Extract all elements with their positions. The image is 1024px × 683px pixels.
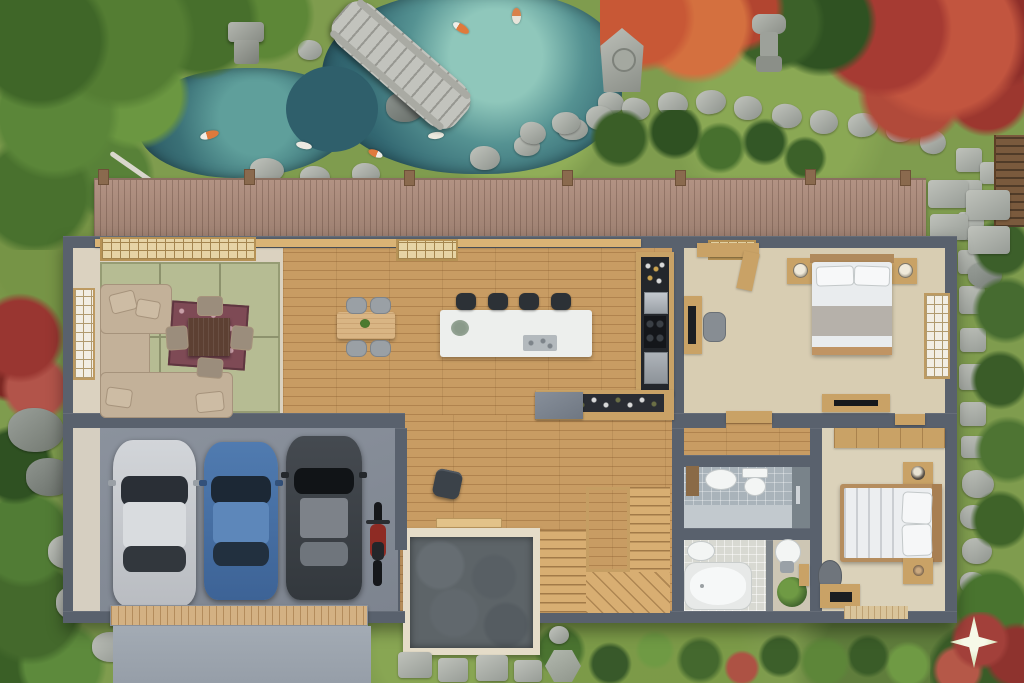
- bed-foot-bench: [812, 347, 892, 355]
- toilet-bowl: [744, 477, 766, 496]
- stepping-stone: [438, 658, 468, 682]
- bath-cabinet: [686, 466, 699, 496]
- rock: [298, 40, 322, 60]
- wall-bath-left: [672, 428, 684, 611]
- wall-hall-south-rooms: [772, 413, 895, 428]
- round-stone: [549, 626, 569, 644]
- genkan-slate-floor: [410, 537, 533, 648]
- powder-basin-pedestal: [780, 561, 794, 573]
- deck-post: [675, 170, 686, 186]
- bar-stool: [551, 293, 571, 310]
- stepping-stone: [956, 148, 982, 172]
- stepping-stone: [771, 102, 803, 129]
- rock: [968, 262, 1002, 288]
- rock: [962, 538, 992, 564]
- floor-cushion: [230, 325, 254, 351]
- lattice-panel: [396, 239, 458, 261]
- floor-cushion: [197, 296, 223, 316]
- stone-slab: [968, 226, 1010, 254]
- desk-monitor: [688, 306, 696, 344]
- stone-slab: [966, 190, 1010, 220]
- island-sink: [451, 320, 469, 336]
- kitchen-gray-cabinet: [535, 392, 583, 419]
- bed-duvet-folds: [844, 488, 902, 558]
- console-tv: [834, 400, 878, 406]
- car-rear-glass: [213, 542, 269, 566]
- deck-post: [404, 170, 415, 186]
- pillow: [816, 265, 855, 286]
- wall-bath-top: [684, 455, 810, 467]
- rock: [470, 146, 500, 170]
- porch-step: [436, 518, 502, 528]
- wall-left: [63, 236, 73, 623]
- car-mirror: [359, 472, 367, 478]
- bath1-lower-band: [684, 505, 792, 528]
- stepping-stone: [847, 112, 879, 139]
- motorcycle-seat: [372, 542, 384, 560]
- stepping-stone: [918, 128, 947, 155]
- powder-wall-frame: [799, 564, 809, 586]
- stone-lantern-pillar-shaft: [760, 32, 778, 58]
- car-windshield: [294, 468, 354, 494]
- bar-stool: [519, 293, 539, 310]
- garage-door: [110, 605, 368, 626]
- pillow: [901, 523, 932, 556]
- floor-plan-render: [0, 0, 1024, 683]
- deck-post: [244, 169, 255, 185]
- bathroom-sink: [705, 469, 737, 490]
- sofa-pillow: [195, 391, 225, 414]
- car-silver: [113, 440, 196, 607]
- shoji-window-bedroom1: [924, 293, 950, 379]
- kitchen-oven: [644, 352, 668, 384]
- stepping-stone: [188, 20, 218, 44]
- floor-cushion: [165, 325, 189, 350]
- stone-lantern-pillar-base: [756, 56, 782, 72]
- wall-garage-entry: [395, 428, 407, 550]
- shower-fixture: [796, 486, 800, 504]
- lattice-panel: [100, 237, 256, 261]
- stone-lantern-square: [228, 22, 264, 42]
- sofa-pillow: [135, 298, 162, 320]
- desk-laptop: [830, 592, 852, 602]
- door-leaf-bedroom2: [895, 414, 925, 425]
- stepping-stone: [262, 16, 290, 38]
- low-table: [188, 318, 230, 356]
- stone-lantern-square-base: [234, 40, 259, 64]
- rock: [142, 58, 168, 78]
- car-rear-glass: [300, 542, 348, 566]
- stepping-stone: [586, 106, 614, 130]
- dining-chair: [346, 340, 367, 357]
- rock: [8, 408, 64, 452]
- deck-post: [98, 169, 109, 185]
- nightstand-cup: [913, 565, 924, 576]
- stepping-stone: [398, 652, 432, 678]
- staircase-winder: [586, 572, 670, 613]
- stepping-stone: [150, 2, 184, 28]
- car-mirror: [281, 472, 289, 478]
- stepping-stone: [620, 96, 651, 123]
- dining-plant: [360, 319, 370, 328]
- stepping-stone: [959, 286, 985, 314]
- car-windshield: [211, 476, 271, 504]
- kitchen-cooktop: [644, 316, 666, 348]
- stepping-stone: [886, 118, 914, 142]
- motorcycle: [364, 502, 394, 586]
- car-sunroof: [300, 498, 348, 538]
- bedside-lamp: [898, 263, 913, 278]
- car-rear-glass: [123, 546, 186, 572]
- kitchen-shelf-bottles: [643, 260, 667, 288]
- car-roof: [213, 502, 269, 544]
- bed-blanket-band: [812, 306, 892, 336]
- stepping-stone: [222, 2, 252, 24]
- driveway: [113, 626, 371, 683]
- hexagon-stone: [545, 650, 581, 682]
- wall-powder-divider: [766, 540, 773, 611]
- stepping-stone: [658, 92, 688, 116]
- bathtub-drain: [700, 584, 704, 588]
- desk-chair: [703, 312, 726, 342]
- deck-post: [805, 169, 816, 185]
- stepping-stone: [694, 88, 727, 116]
- bedside-lamp: [793, 263, 808, 278]
- deck-post: [900, 170, 911, 186]
- garage-side-strip: [73, 428, 102, 611]
- stepping-stone: [734, 96, 762, 120]
- rock: [962, 470, 994, 498]
- stone-lantern-pagoda-ring: [612, 48, 636, 72]
- dining-chair: [370, 297, 391, 314]
- stepping-stone: [960, 328, 986, 352]
- door-leaf-bedroom1: [726, 411, 772, 423]
- kitchen-steel-panel: [644, 292, 668, 314]
- dining-chair: [370, 340, 391, 357]
- stepping-stone: [810, 110, 838, 134]
- wall-hall-south-rooms: [672, 413, 726, 428]
- rock: [960, 572, 986, 594]
- stone-slab: [928, 180, 968, 208]
- staircase-right-flight: [630, 487, 670, 572]
- deck-post: [562, 170, 573, 186]
- koi-fish: [512, 8, 521, 24]
- bathroom2-sink: [687, 541, 715, 561]
- bar-stool: [488, 293, 508, 310]
- engawa-deck: [94, 178, 926, 242]
- island-cooktop-tray: [523, 335, 557, 351]
- rock: [126, 96, 156, 120]
- bar-stool: [456, 293, 476, 310]
- car-roof: [123, 502, 186, 548]
- wardrobe-bedroom2: [834, 428, 945, 448]
- stone-lantern-pillar: [752, 14, 786, 34]
- staircase-left-flight: [540, 530, 586, 613]
- car-mirror: [108, 480, 116, 486]
- motorcycle-rear-wheel: [373, 560, 382, 586]
- rock: [960, 505, 988, 529]
- wall-bath-middle: [684, 528, 810, 540]
- stepping-stone: [960, 402, 986, 426]
- koi-pond-neck: [286, 66, 378, 152]
- bathtub-basin: [690, 567, 746, 605]
- shoji-screen: [73, 288, 95, 380]
- car-blue: [204, 442, 278, 600]
- sofa-pillow: [105, 386, 133, 408]
- floor-mat: [844, 606, 908, 619]
- car-charcoal: [286, 436, 362, 600]
- car-mirror: [275, 480, 283, 486]
- stepping-stone: [961, 436, 985, 458]
- staircase-railing: [586, 487, 630, 572]
- shower-wall: [792, 467, 810, 528]
- stepping-stone: [514, 660, 542, 682]
- pillow: [854, 265, 891, 286]
- wall-hall-south-rooms: [925, 413, 957, 428]
- bedside-lamp-dark: [911, 466, 925, 480]
- bed-headboard2: [932, 484, 942, 562]
- pillow: [901, 491, 933, 525]
- car-mirror: [199, 480, 207, 486]
- floor-cushion: [196, 357, 224, 379]
- dining-chair: [346, 297, 367, 314]
- stepping-stone: [959, 364, 987, 390]
- stepping-stone: [476, 655, 508, 681]
- sparkle-watermark-icon: [950, 616, 998, 668]
